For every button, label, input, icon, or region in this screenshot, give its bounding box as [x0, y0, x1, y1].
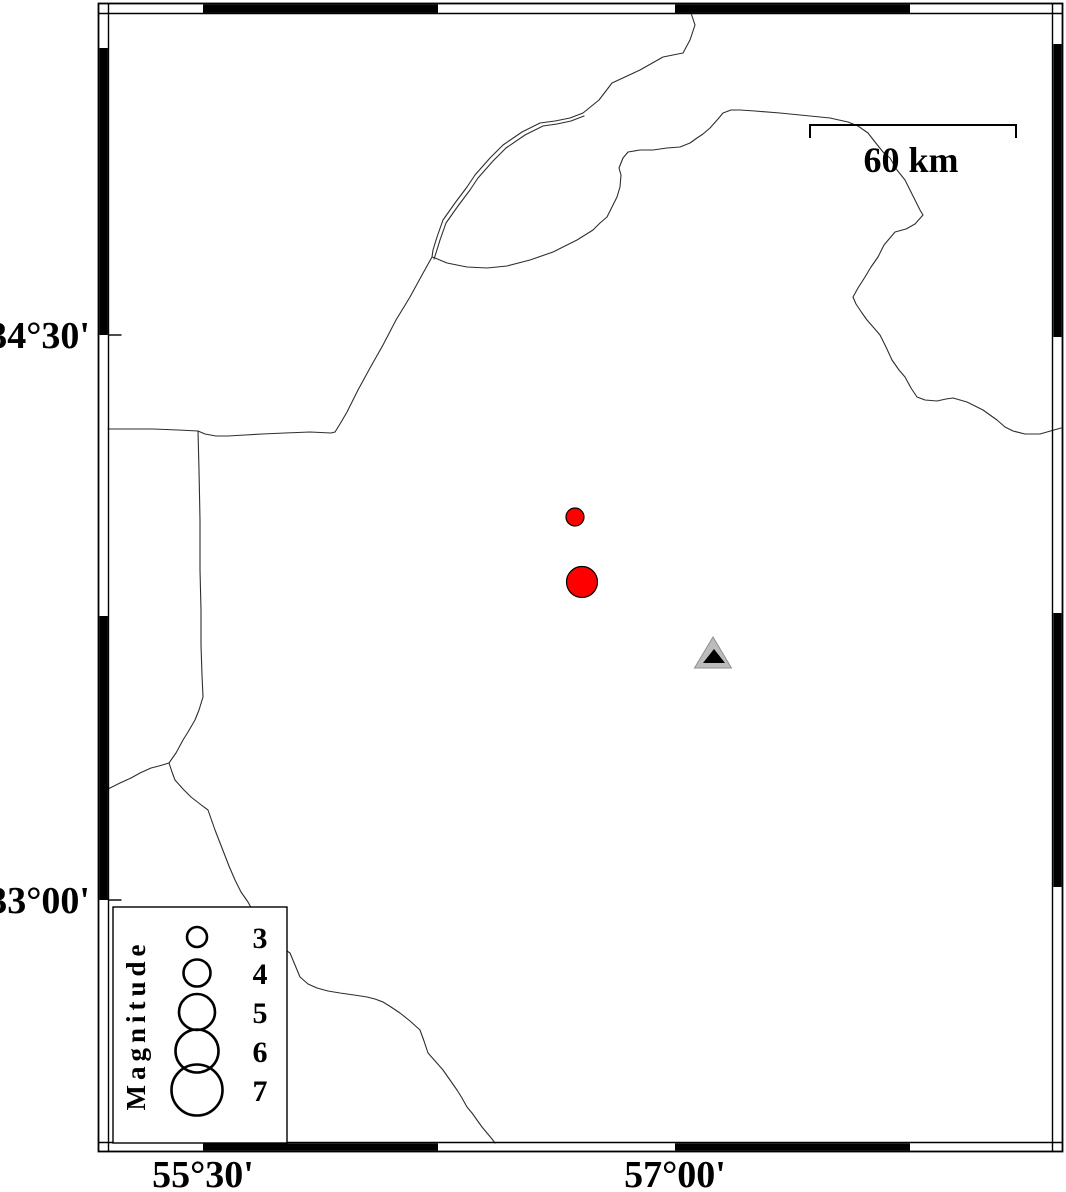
frame-black-segment	[203, 1143, 438, 1150]
latitude-label: 33°00'	[0, 880, 90, 922]
legend-magnitude-value: 4	[253, 958, 268, 991]
frame-black-segment	[203, 5, 438, 13]
scale-bar-label: 60 km	[863, 140, 958, 180]
longitude-label: 55°30'	[152, 1154, 254, 1192]
boundary-line	[169, 431, 203, 763]
legend-magnitude-value: 6	[253, 1036, 268, 1069]
latitude-label: 34°30'	[0, 315, 90, 357]
boundary-line	[108, 763, 169, 789]
earthquake-epicenter	[567, 567, 598, 598]
frame-black-segment	[1053, 44, 1061, 337]
scale-bar: 60 km	[810, 125, 1016, 180]
frame-black-segment	[100, 48, 108, 335]
frame-black-segment	[675, 5, 910, 13]
magnitude-legend: Magnitude 34567	[113, 907, 287, 1143]
longitude-label: 57°00'	[624, 1154, 726, 1192]
earthquake-epicenters	[566, 508, 598, 598]
earthquake-epicenter	[566, 508, 584, 526]
seismicity-map-figure: 34°30'33°00'55°30'57°00' 60 km Magnitude…	[0, 0, 1066, 1192]
frame-black-segment	[100, 616, 108, 900]
frame-black-segment	[675, 1143, 910, 1150]
seismic-station-marker	[695, 637, 732, 668]
scale-bar-bracket	[810, 125, 1016, 138]
legend-magnitude-value: 7	[253, 1075, 268, 1108]
legend-magnitude-value: 5	[253, 997, 268, 1030]
legend-title: Magnitude	[121, 939, 151, 1110]
frame-black-segment	[1053, 613, 1061, 887]
boundary-line	[108, 429, 335, 436]
legend-magnitude-value: 3	[253, 922, 268, 955]
map-canvas: 34°30'33°00'55°30'57°00' 60 km Magnitude…	[0, 0, 1066, 1192]
boundary-line	[432, 110, 1061, 434]
boundary-line	[335, 13, 695, 432]
boundary-line	[434, 116, 584, 259]
